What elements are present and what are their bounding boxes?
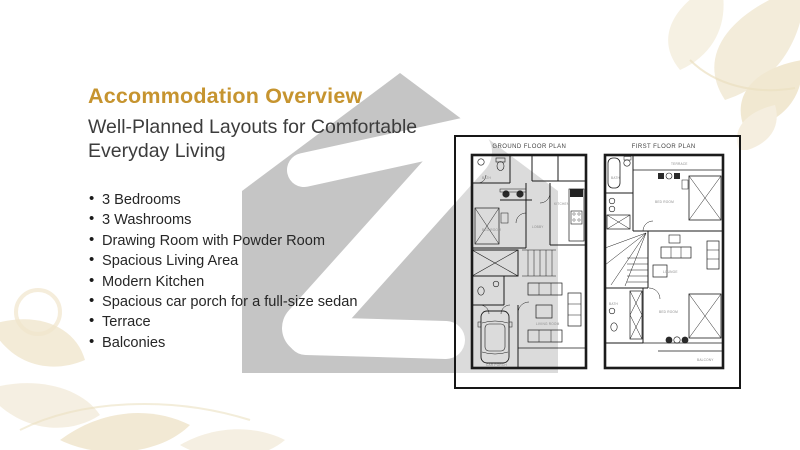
first-floor-plan: FIRST FLOOR PLAN [603, 144, 725, 387]
feature-item: 3 Washrooms [88, 210, 458, 230]
room-label: BED ROOM [655, 200, 674, 204]
feature-item: Balconies [88, 333, 458, 353]
room-label: BALCONY [697, 358, 714, 362]
content-block: Accommodation Overview Well-Planned Layo… [88, 84, 458, 353]
ground-floor-plan-drawing: BATH BED ROOM KITCHEN LOBBY CAR PORCH LI… [470, 153, 588, 371]
feature-item: 3 Bedrooms [88, 190, 458, 210]
feature-item: Modern Kitchen [88, 272, 458, 292]
room-label: LIVING ROOM [536, 322, 560, 326]
first-floor-plan-title: FIRST FLOOR PLAN [632, 144, 696, 150]
room-label: BATH [609, 302, 619, 306]
page-title: Accommodation Overview [88, 84, 458, 109]
room-label: BATH [611, 176, 621, 180]
room-label: LOUNGE [663, 270, 678, 274]
subtitle-line-1: Well-Planned Layouts for Comfortable [88, 116, 458, 140]
feature-list: 3 Bedrooms 3 Washrooms Drawing Room with… [88, 190, 458, 353]
room-label: BED ROOM [659, 310, 678, 314]
ground-floor-plan-title: GROUND FLOOR PLAN [492, 144, 566, 150]
slide: Accommodation Overview Well-Planned Layo… [0, 0, 800, 450]
room-label: CAR PORCH [486, 363, 507, 367]
floral-ornament-top-right-icon [570, 0, 800, 150]
first-floor-plan-drawing: BATH TERRACE BED ROOM LOUNGE BATH BED RO… [603, 153, 725, 371]
feature-item: Terrace [88, 312, 458, 332]
room-label: LOBBY [532, 225, 544, 229]
room-label: TERRACE [671, 162, 688, 166]
room-label: BATH [482, 176, 492, 180]
room-label: BED ROOM [482, 228, 501, 232]
feature-item: Spacious car porch for a full-size sedan [88, 292, 458, 312]
room-label: KITCHEN [554, 202, 570, 206]
feature-item: Drawing Room with Powder Room [88, 231, 458, 251]
floorplan-panel: GROUND FLOOR PLAN [454, 135, 741, 389]
feature-item: Spacious Living Area [88, 251, 458, 271]
subtitle-line-2: Everyday Living [88, 140, 458, 164]
page-subtitle: Well-Planned Layouts for Comfortable Eve… [88, 116, 458, 163]
ground-floor-plan: GROUND FLOOR PLAN [470, 144, 588, 387]
